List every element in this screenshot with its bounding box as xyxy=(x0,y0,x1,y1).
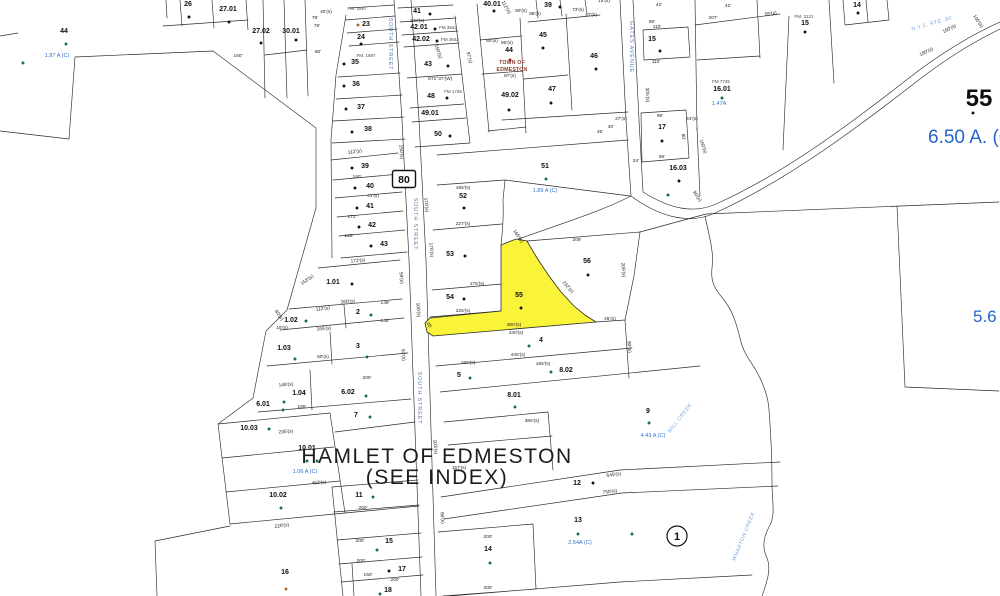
parcel-point-marker xyxy=(463,254,467,258)
parcel-point-marker xyxy=(856,11,860,15)
parcel-point-marker xyxy=(368,415,372,419)
hamlet-subtitle: (SEE INDEX) xyxy=(366,466,509,489)
parcel-number-label[interactable]: 49.01 xyxy=(421,110,439,117)
dimension-label: 160'(s) xyxy=(698,139,709,155)
parcel-number-label[interactable]: 8.01 xyxy=(507,392,521,399)
parcel-number-label[interactable]: 53 xyxy=(446,251,454,258)
dimension-label: 55'(s) xyxy=(764,10,777,18)
dimension-label: 24' xyxy=(633,158,639,164)
parcel-point-marker xyxy=(369,244,373,248)
parcel-point-marker xyxy=(660,139,664,143)
dimension-label: 200' xyxy=(484,585,493,591)
parcel-point-marker xyxy=(342,84,346,88)
parcel-number-label[interactable]: 41 xyxy=(413,8,421,15)
dimension-label: 96' xyxy=(657,113,663,119)
parcel-number-label[interactable]: 41 xyxy=(366,203,374,210)
parcel-point-marker xyxy=(462,297,466,301)
dimension-label: 200' xyxy=(359,505,368,511)
parcel-number-label[interactable]: 26 xyxy=(184,1,192,8)
parcel-point-marker xyxy=(433,27,437,31)
block-number-text: 1 xyxy=(674,531,680,543)
parcel-number-label[interactable]: 1.02 xyxy=(284,317,298,324)
dimension-label: 47'(s) xyxy=(585,12,597,18)
parcel-number-label[interactable]: 51 xyxy=(541,163,549,170)
parcel-point-marker xyxy=(428,12,432,16)
parcel-number-label[interactable]: 16.03 xyxy=(669,165,687,172)
parcel-number-label[interactable]: 6.01 xyxy=(256,401,270,408)
parcel-point-marker xyxy=(371,495,375,499)
parcel-point-marker xyxy=(666,193,670,197)
parcel-number-label[interactable]: 43 xyxy=(380,241,388,248)
dimension-label: 90'(s) xyxy=(515,8,527,14)
dimension-label: 172' xyxy=(348,214,357,220)
parcel-point-marker xyxy=(576,532,580,536)
parcel-number-label[interactable]: 42.02 xyxy=(412,36,430,43)
parcel-number-label[interactable]: 56 xyxy=(583,258,591,265)
filed-map-label: FM 3642 xyxy=(439,25,457,30)
dimension-label: 87'(s) xyxy=(504,73,516,79)
filed-map-label: FM 3642 xyxy=(441,37,459,42)
parcel-point-marker xyxy=(541,46,545,50)
parcel-point-marker xyxy=(462,206,466,210)
dimension-label: 42' xyxy=(725,3,731,9)
dimension-label: 750'(s) xyxy=(602,488,618,496)
dimension-label: 452'(s) xyxy=(311,479,326,486)
parcel-point-marker xyxy=(594,67,598,71)
parcel-point-marker xyxy=(357,225,361,229)
acreage-label: 2.54A (C) xyxy=(568,540,592,546)
parcel-point-marker xyxy=(282,400,286,404)
parcel-number-label[interactable]: 23 xyxy=(362,21,370,28)
parcel-point-marker xyxy=(677,179,681,183)
parcel-point-marker xyxy=(259,41,263,45)
dimension-label: 153'(s) xyxy=(300,273,316,286)
parcel-point-marker xyxy=(468,376,472,380)
parcel-number-label[interactable]: 1.04 xyxy=(292,390,306,397)
parcel-point-marker xyxy=(527,344,531,348)
dimension-label: 180'(s) xyxy=(919,46,935,58)
parcel-number-label[interactable]: 44 xyxy=(60,28,68,35)
parcel-point-marker xyxy=(344,107,348,111)
dimension-label: 440'(s) xyxy=(509,330,524,336)
parcel-point-marker xyxy=(369,313,373,317)
dimension-label: 80' xyxy=(680,134,687,141)
dimension-label: 160' xyxy=(353,174,362,180)
dimension-label: 59'(s) xyxy=(397,272,404,285)
water-road-name-label: MILL CREEK xyxy=(667,402,694,434)
dimension-label: 95'(s) xyxy=(529,11,541,17)
parcel-number-label[interactable]: 10.03 xyxy=(240,425,258,432)
parcel-number-label[interactable]: 30.01 xyxy=(282,28,300,35)
parcel-number-label[interactable]: 8.02 xyxy=(559,367,573,374)
dimension-label: 200' xyxy=(391,577,400,583)
parcel-point-marker xyxy=(353,186,357,190)
dimension-label: 27'(s) xyxy=(615,116,627,122)
parcel-point-marker xyxy=(378,592,382,596)
bottom-west-column xyxy=(332,480,423,596)
parcel-number-label[interactable]: 15 xyxy=(385,538,393,545)
parcel-number-label[interactable]: 11 xyxy=(355,492,363,499)
parcel-number-label[interactable]: 48 xyxy=(427,93,435,100)
parcel-point-marker xyxy=(279,506,283,510)
dimension-label: 207' xyxy=(709,15,718,21)
dimension-label: 90'(s) xyxy=(438,512,445,525)
acreage-label: 4.43 A (C) xyxy=(641,433,666,439)
parcel-number-label[interactable]: 38 xyxy=(364,126,372,133)
block-number-circle: 1 xyxy=(667,526,687,546)
filed-map-label: FM. 1697 xyxy=(356,53,376,58)
dimension-label: 220'(s) xyxy=(274,522,290,530)
acreage-label: 1.89 A (C) xyxy=(533,188,558,194)
bottom-left-boundary xyxy=(155,526,230,596)
parcel-number-label[interactable]: 46 xyxy=(590,53,598,60)
parcel-number-label[interactable]: 27.01 xyxy=(219,6,237,13)
parcel-point-marker xyxy=(488,561,492,565)
parcel-number-label[interactable]: 42 xyxy=(368,222,376,229)
dimension-label: 205'(s) xyxy=(619,262,626,277)
parcel-point-marker xyxy=(227,20,231,24)
parcel-point-marker xyxy=(375,548,379,552)
parcel-number-label[interactable]: 44 xyxy=(505,47,513,54)
dimension-label: 45'(s) xyxy=(604,316,616,322)
parcel-point-marker xyxy=(187,15,191,19)
dimension-label: 235'(s) xyxy=(278,428,293,435)
dimension-label: 112'(s) xyxy=(500,0,512,15)
dimension-label: 365'(s) xyxy=(525,418,540,424)
parcel-point-marker xyxy=(350,166,354,170)
parcel-number-label[interactable]: 49.02 xyxy=(501,92,519,99)
parcel-point-marker xyxy=(658,49,662,53)
tax-map-viewport[interactable]: 442627.0127.0230.01232435363738394041424… xyxy=(0,0,1000,596)
parcel-point-marker xyxy=(720,96,724,100)
parcel-number-label[interactable]: 39 xyxy=(544,2,552,9)
parcel-number-label[interactable]: 16.01 xyxy=(713,86,731,93)
parcel-point-marker xyxy=(544,177,548,181)
town-label-line2: EDMESTON xyxy=(497,67,528,73)
dimension-label: S71°37'(W) xyxy=(428,76,453,82)
dimension-label: 78' xyxy=(312,15,318,21)
dimension-label: 200' xyxy=(363,375,372,381)
filed-map-label: FM 1726 xyxy=(444,89,462,94)
parcel-number-label[interactable]: 15 xyxy=(801,20,809,27)
dimension-label: 150'(s) xyxy=(433,44,444,60)
parcel-point-marker xyxy=(513,405,517,409)
parcel-number-label[interactable]: 40.01 xyxy=(483,1,501,8)
parcel-point-marker xyxy=(448,134,452,138)
parcel-number-label[interactable]: 10.02 xyxy=(269,492,287,499)
parcel-point-marker xyxy=(281,408,285,412)
parcel-number-label[interactable]: 17 xyxy=(398,566,406,573)
acreage-label: 1.47A xyxy=(712,101,727,107)
dimension-label: 90'(s) xyxy=(625,341,632,354)
dimension-label: 200' xyxy=(357,558,366,564)
town-of-edmeston-label: TOWN OF EDMESTON xyxy=(497,60,528,73)
dimension-label: 445'(s) xyxy=(511,352,526,358)
parcel-number-label[interactable]: 54 xyxy=(446,294,454,301)
parcel-number-label[interactable]: 39 xyxy=(361,163,369,170)
parcel-number-label[interactable]: 50 xyxy=(434,131,442,138)
dimension-label: 225'(s) xyxy=(456,308,471,314)
right-boundary-lines xyxy=(640,202,999,391)
dimension-label: 15'(s) xyxy=(598,0,610,4)
dimension-label: 195'(s) xyxy=(456,185,471,191)
parcel-number-label[interactable]: 12 xyxy=(573,480,581,487)
parcel-number-label[interactable]: 47 xyxy=(548,86,556,93)
dimension-label: 150' xyxy=(364,572,373,578)
dimension-label: 110' xyxy=(652,59,661,65)
dimension-label: 160'(s) xyxy=(942,23,958,35)
parcel-point-marker xyxy=(365,355,369,359)
parcel-point-marker xyxy=(549,370,553,374)
dimension-label: 165' xyxy=(298,404,307,410)
parcel-point-marker xyxy=(591,481,595,485)
parcel-point-marker xyxy=(647,421,651,425)
parcel-number-label[interactable]: 14 xyxy=(853,2,861,9)
dimension-label: 85'(s) xyxy=(501,40,513,46)
parcel-number-label[interactable]: 42.01 xyxy=(410,24,428,31)
parcel-point-marker xyxy=(267,427,271,431)
filed-map-label: FM. 3121 xyxy=(794,14,814,19)
dimension-label: 148' xyxy=(381,318,390,324)
parcel-number-label[interactable]: 7 xyxy=(354,412,358,419)
dimension-label: 209' xyxy=(573,237,582,243)
dimension-label: 260'(s) xyxy=(340,298,355,305)
dimension-label: 41'(s) xyxy=(367,193,379,199)
dimension-label: 50'(s) xyxy=(317,354,329,360)
dimension-label: 10'(s) xyxy=(276,325,288,331)
parcel-point-marker xyxy=(435,39,439,43)
parcel-point-marker xyxy=(64,42,68,46)
dimension-label: 63'(s) xyxy=(399,349,406,362)
parcel-point-marker xyxy=(355,206,359,210)
right-acreage-partial: 5.6 xyxy=(973,307,997,326)
dimension-label: 200' xyxy=(356,538,365,544)
dimension-label: 73'(s) xyxy=(572,7,584,13)
dimension-label: 140'(s) xyxy=(410,18,425,24)
dimension-label: 170'(s) xyxy=(427,242,434,257)
parcel-number-label[interactable]: 16 xyxy=(281,569,289,576)
parcel-point-marker xyxy=(549,101,553,105)
parcel-point-marker xyxy=(293,357,297,361)
parcel-number-label[interactable]: 43 xyxy=(424,61,432,68)
parcel-point-marker xyxy=(284,587,288,591)
dimension-label: 148' xyxy=(381,300,390,306)
parcel-number-label[interactable]: 36 xyxy=(352,81,360,88)
west-1-series-rows xyxy=(253,208,415,432)
parcel-number-label[interactable]: 15 xyxy=(648,36,656,43)
route-80-number: 80 xyxy=(398,174,410,186)
dimension-label: 44'(s) xyxy=(686,116,698,122)
road-name-label: GATES AVENUE xyxy=(628,21,634,73)
dimension-label: 232'(s) xyxy=(561,280,575,295)
parcel-number-label[interactable]: 1.03 xyxy=(277,345,291,352)
filed-map-label: FM. 1697 xyxy=(347,6,367,11)
dimension-label: 180'(s) xyxy=(461,360,476,366)
road-name-label: SOUTH STREET xyxy=(387,18,393,71)
parcel-point-marker xyxy=(492,9,496,13)
parcel-boundaries xyxy=(0,0,1000,596)
road-name-label: SOUTH STREET xyxy=(412,198,418,251)
dimension-label: 148'(s) xyxy=(278,381,293,388)
parcel-number-label[interactable]: 52 xyxy=(459,193,467,200)
dimension-label: 40'(s) xyxy=(320,9,332,15)
parcel-number-label[interactable]: 18 xyxy=(384,587,392,594)
large-parcel-55-acreage: 6.50 A. (C) xyxy=(928,127,1000,148)
dimension-label: 112'(s) xyxy=(347,148,362,156)
dimension-label: 185'(s) xyxy=(536,361,551,367)
parcel-number-label[interactable]: 40 xyxy=(366,183,374,190)
dimension-label: 160' xyxy=(234,53,243,59)
tax-map-canvas[interactable]: 442627.0127.0230.01232435363738394041424… xyxy=(0,0,1000,596)
dimension-label: 105'(s) xyxy=(971,14,984,30)
parcel-point-marker xyxy=(630,532,634,536)
parcel-number-label[interactable]: 3 xyxy=(356,343,360,350)
water-road-name-label: WHARTON CREEK xyxy=(731,511,756,562)
parcel-number-label[interactable]: 17 xyxy=(658,124,666,131)
parcel-number-label[interactable]: 37 xyxy=(357,104,365,111)
dimension-label: 360'(s) xyxy=(507,322,522,328)
dimension-label: 40' xyxy=(608,124,614,130)
dimension-label: 90'(s) xyxy=(691,190,703,203)
dimension-label: 42' xyxy=(656,2,662,8)
east-lot-column xyxy=(398,5,470,147)
parcel-number-label[interactable]: 5 xyxy=(457,372,461,379)
dimension-label: 305'(s) xyxy=(644,88,651,103)
dimension-label: 80' xyxy=(315,49,321,55)
filed-map-label: FM 7745 xyxy=(712,79,730,84)
parcel-point-marker xyxy=(387,569,391,573)
parcel-number-label[interactable]: 27.02 xyxy=(252,28,270,35)
hamlet-title: HAMLET OF EDMESTON xyxy=(301,445,572,468)
parcel-point-marker xyxy=(445,96,449,100)
parcel-number-label[interactable]: 6.02 xyxy=(341,389,355,396)
parcel-point-marker xyxy=(21,61,25,65)
parcel-number-label[interactable]: 45 xyxy=(539,32,547,39)
parcel-number-label[interactable]: 13 xyxy=(574,517,582,524)
parcel-point-marker xyxy=(803,30,807,34)
dimension-label: 100'(s) xyxy=(414,302,421,317)
parcel-point-marker xyxy=(507,108,511,112)
acreage-label: 1.06 A (C) xyxy=(293,469,318,475)
parcel-number-label[interactable]: 55 xyxy=(515,292,523,299)
parcel-number-label[interactable]: 1.01 xyxy=(326,279,340,286)
parcel-point-marker xyxy=(294,38,298,42)
parcel-point-marker xyxy=(350,130,354,134)
dimension-label: 200' xyxy=(484,534,493,540)
route-80-shield: 80 xyxy=(393,171,416,188)
dimension-label: 227'(s) xyxy=(456,221,471,227)
dimension-label: 110' xyxy=(653,24,662,30)
parcel-number-label[interactable]: 24 xyxy=(357,34,365,41)
dimension-label: 125' xyxy=(345,233,354,239)
parcel-number-label[interactable]: 2 xyxy=(356,309,360,316)
large-parcel-55-number[interactable]: 55 xyxy=(966,85,993,112)
parcel-point-marker xyxy=(304,319,308,323)
dimension-label: 45' xyxy=(597,129,603,135)
parcel-number-label[interactable]: 35 xyxy=(351,59,359,66)
dimension-label: 80'(s) xyxy=(273,309,285,322)
dimension-label: 645'(s) xyxy=(606,471,622,479)
dimension-label: 175'(s) xyxy=(470,281,485,287)
parcel-point-marker xyxy=(364,394,368,398)
parcel-point-marker xyxy=(356,23,360,27)
parcel-52-54-rows xyxy=(430,180,505,317)
parcel-point-marker xyxy=(586,273,590,277)
top-right-lots xyxy=(695,0,889,150)
acreage-label: 1.87 A (C) xyxy=(45,53,70,59)
dimension-label: 97'(s) xyxy=(465,51,474,64)
parcel-point-marker xyxy=(446,64,450,68)
dimension-label: 76' xyxy=(314,23,320,29)
parcel-number-label[interactable]: 4 xyxy=(539,337,543,344)
parcel-number-label[interactable]: 14 xyxy=(484,546,492,553)
dimension-label: 96' xyxy=(659,154,665,160)
dimension-label: 80'(s) xyxy=(486,38,498,44)
parcel-point-marker xyxy=(350,282,354,286)
road-name-label: SOUTH STREET xyxy=(416,372,422,425)
town-label-line1: TOWN OF xyxy=(499,60,525,66)
parcel-point-marker xyxy=(342,62,346,66)
parcel-number-label[interactable]: 9 xyxy=(646,408,650,415)
